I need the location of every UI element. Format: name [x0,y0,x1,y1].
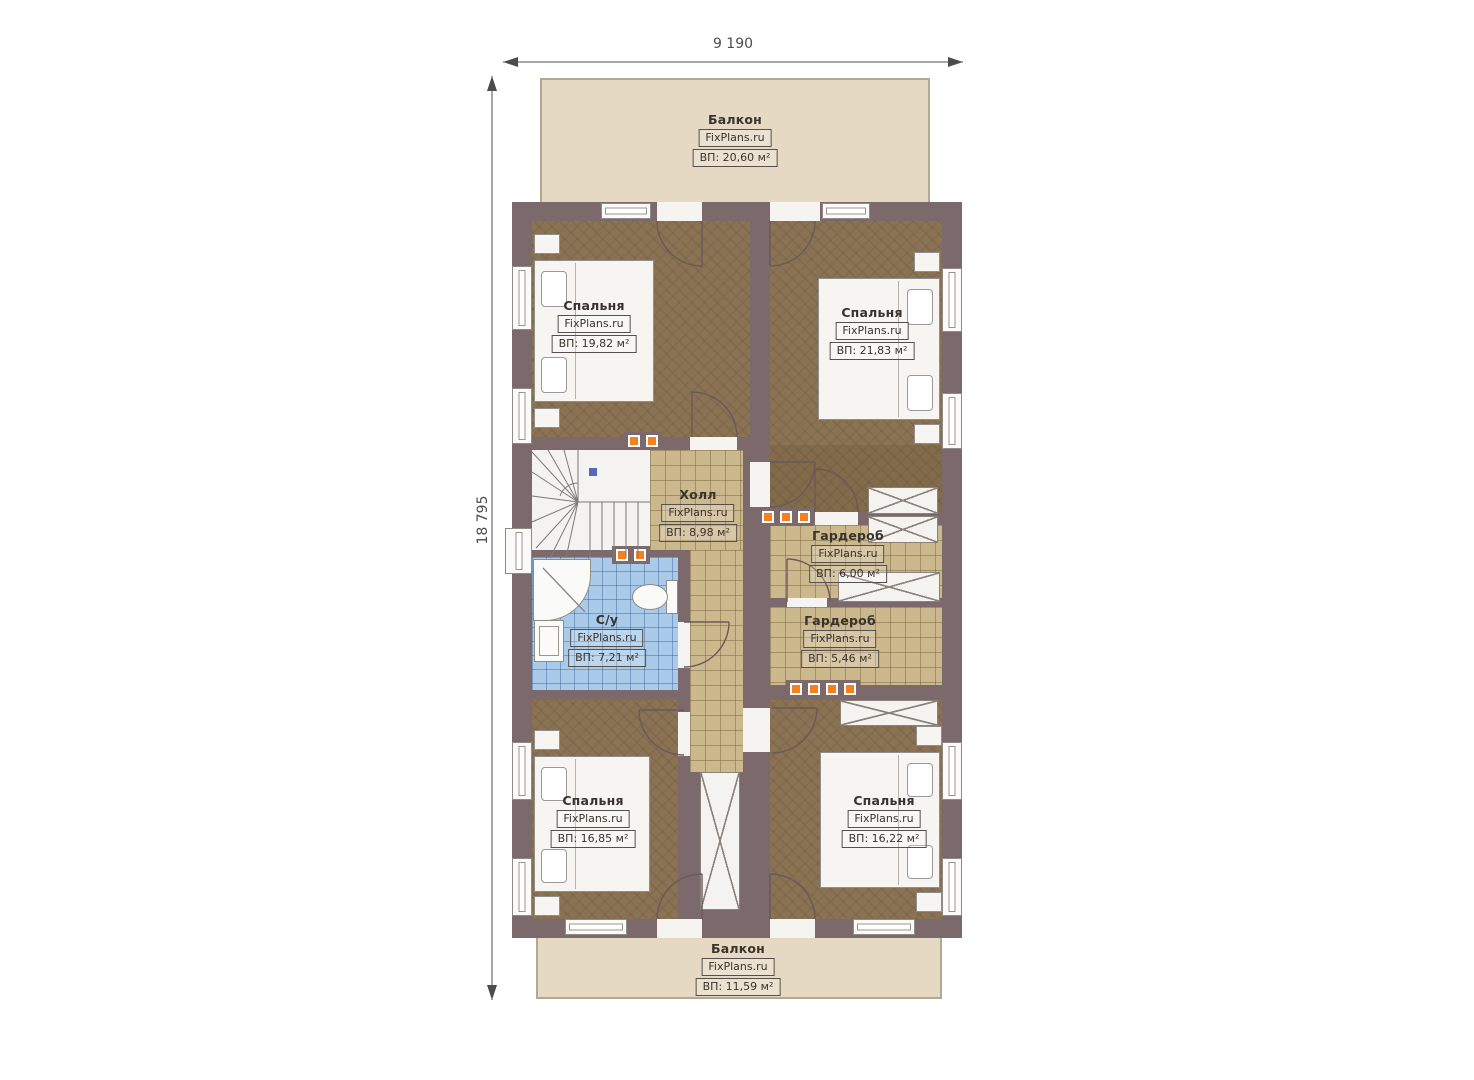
brand-label: FixPlans.ru [835,322,908,340]
room-label-bedroom-tr: Спальня FixPlans.ru ВП: 21,83 м² [830,305,915,360]
room-label-bathroom: С/у FixPlans.ru ВП: 7,21 м² [568,612,646,667]
vent-marker [634,549,646,561]
window-left-2 [512,388,532,444]
dimension-height-label: 18 795 [475,475,491,565]
vent-marker [798,511,810,523]
window-left-stairs [505,528,532,574]
doorway-wardrobe-upper [815,512,858,525]
pillow [541,357,567,393]
room-area: ВП: 20,60 м² [693,149,778,167]
doorway-balcony-bottom-left [657,919,702,938]
nightstand [534,896,560,916]
brand-label: FixPlans.ru [701,958,774,976]
room-label-bedroom-bl: Спальня FixPlans.ru ВП: 16,85 м² [551,793,636,848]
brand-label: FixPlans.ru [698,129,771,147]
doorway-bathroom [678,622,690,668]
brand-label: FixPlans.ru [570,629,643,647]
wall-vent-group-1 [624,432,662,450]
brand-label: FixPlans.ru [803,630,876,648]
room-name: Гардероб [801,613,879,628]
room-label-balcony-top: Балкон FixPlans.ru ВП: 20,60 м² [693,112,778,167]
nightstand [914,252,940,272]
vent-marker [762,511,774,523]
room-area: ВП: 5,46 м² [801,650,879,668]
room-area: ВП: 21,83 м² [830,342,915,360]
room-area: ВП: 16,85 м² [551,830,636,848]
window-right-1 [942,268,962,332]
nightstand [914,424,940,444]
ventilation-shaft [700,772,740,910]
doorway-wardrobe-lower [787,598,827,607]
brand-label: FixPlans.ru [556,810,629,828]
brand-label: FixPlans.ru [661,504,734,522]
vent-marker [646,435,658,447]
wall-vent-group-4 [786,680,860,698]
floor-plan-canvas: 9 190 18 795 [0,0,1474,1080]
room-label-bedroom-br: Спальня FixPlans.ru ВП: 16,22 м² [842,793,927,848]
stairwell-floor [532,450,650,550]
room-name: С/у [568,612,646,627]
pillow [907,845,933,879]
window-bottom-1 [565,919,627,935]
brand-label: FixPlans.ru [811,545,884,563]
pillow [541,849,567,883]
nightstand [916,892,942,912]
dimension-width-label: 9 190 [503,36,963,52]
room-name: Балкон [693,112,778,127]
room-area: ВП: 8,98 м² [659,524,737,542]
brand-label: FixPlans.ru [557,315,630,333]
room-label-bedroom-tl: Спальня FixPlans.ru ВП: 19,82 м² [552,298,637,353]
room-area: ВП: 6,00 м² [809,565,887,583]
room-label-wardrobe-upper: Гардероб FixPlans.ru ВП: 6,00 м² [809,528,887,583]
vent-marker [808,683,820,695]
doorway-bedroom-tr [750,462,770,507]
doorway-balcony-top-right [770,202,820,221]
doorway-bedroom-br [743,708,770,752]
window-right-3 [942,742,962,800]
stair-marker [589,468,597,476]
window-top-2 [822,203,870,219]
vent-marker [826,683,838,695]
doorway-bedroom-bl [678,712,690,756]
vent-marker [780,511,792,523]
window-bottom-2 [853,919,915,935]
wardrobe-unit [840,700,938,726]
window-left-3 [512,742,532,800]
window-top-1 [601,203,651,219]
room-name: Спальня [830,305,915,320]
room-area: ВП: 7,21 м² [568,649,646,667]
pillow [907,375,933,411]
room-name: Спальня [552,298,637,313]
nightstand [534,234,560,254]
room-name: Спальня [551,793,636,808]
pillow [907,763,933,797]
window-left-1 [512,266,532,330]
sink [534,620,564,662]
vent-marker [616,549,628,561]
vent-marker [628,435,640,447]
room-label-wardrobe-lower: Гардероб FixPlans.ru ВП: 5,46 м² [801,613,879,668]
vent-marker [790,683,802,695]
room-label-balcony-bottom: Балкон FixPlans.ru ВП: 11,59 м² [696,941,781,996]
doorway-bedroom-tl [690,437,737,450]
corridor-floor [690,550,743,772]
room-label-hall: Холл FixPlans.ru ВП: 8,98 м² [659,487,737,542]
toilet-bowl [632,584,668,610]
brand-label: FixPlans.ru [847,810,920,828]
doorway-balcony-bottom-right [770,919,815,938]
window-right-4 [942,858,962,916]
vent-marker [844,683,856,695]
room-name: Спальня [842,793,927,808]
room-name: Холл [659,487,737,502]
window-right-2 [942,393,962,449]
nightstand [916,726,942,746]
room-area: ВП: 19,82 м² [552,335,637,353]
wall-vent-group-3 [758,508,814,526]
doorway-balcony-top-left [657,202,702,221]
nightstand [534,408,560,428]
wardrobe-unit [868,487,938,514]
room-area: ВП: 16,22 м² [842,830,927,848]
room-name: Гардероб [809,528,887,543]
window-left-4 [512,858,532,916]
room-name: Балкон [696,941,781,956]
nightstand [534,730,560,750]
room-area: ВП: 11,59 м² [696,978,781,996]
wall-vent-group-2 [612,546,650,564]
